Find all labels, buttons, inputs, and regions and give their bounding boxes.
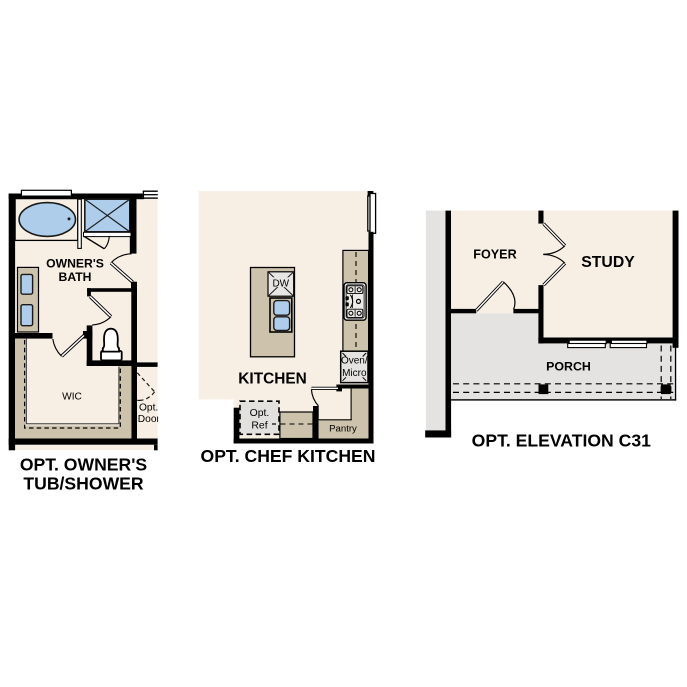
svg-text:OPT. OWNER'S: OPT. OWNER'S	[20, 454, 148, 474]
svg-text:TUB/SHOWER: TUB/SHOWER	[23, 474, 144, 494]
svg-text:OPT. CHEF KITCHEN: OPT. CHEF KITCHEN	[201, 446, 376, 466]
svg-text:BATH: BATH	[59, 270, 92, 284]
svg-text:Micro: Micro	[342, 368, 367, 379]
svg-text:Opt.: Opt.	[250, 408, 270, 419]
svg-text:OPT. ELEVATION C31: OPT. ELEVATION C31	[472, 430, 651, 450]
svg-text:Opt.: Opt.	[139, 403, 158, 414]
svg-text:DW: DW	[272, 279, 289, 290]
svg-text:OWNER'S: OWNER'S	[46, 257, 104, 271]
svg-text:Ref: Ref	[251, 421, 267, 432]
svg-text:WIC: WIC	[62, 392, 82, 403]
svg-text:PORCH: PORCH	[546, 360, 591, 374]
svg-text:FOYER: FOYER	[473, 248, 516, 262]
svg-text:Oven/: Oven/	[341, 355, 368, 366]
svg-text:Door: Door	[138, 414, 161, 425]
svg-text:KITCHEN: KITCHEN	[238, 370, 306, 387]
svg-text:Pantry: Pantry	[329, 424, 357, 435]
svg-text:STUDY: STUDY	[581, 254, 635, 271]
